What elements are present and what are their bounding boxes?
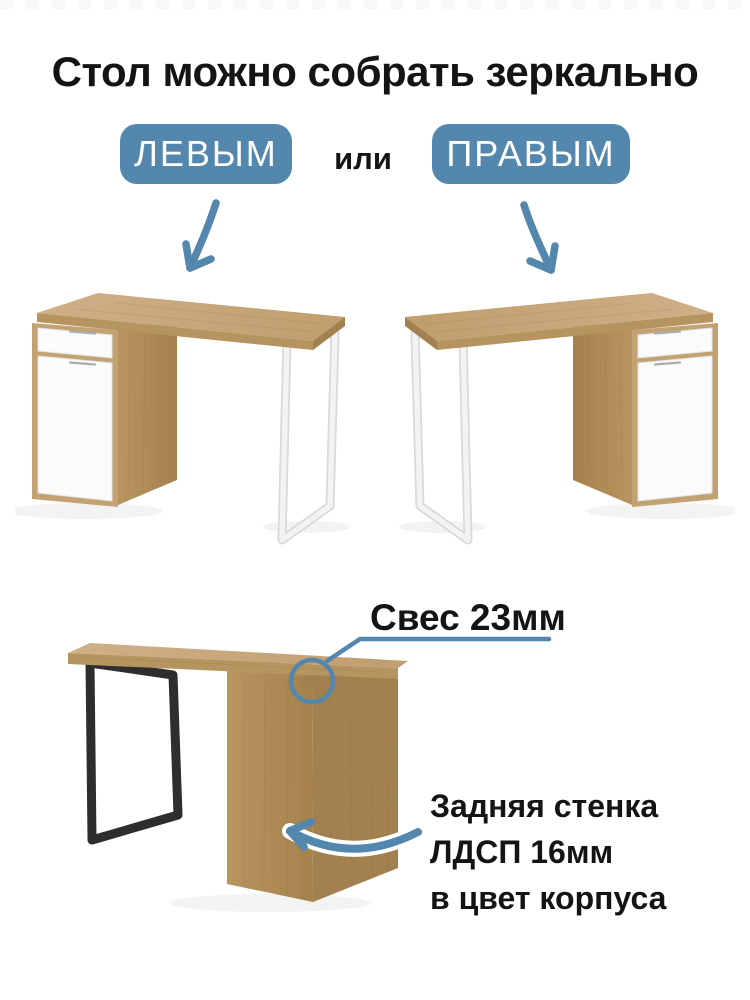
- pedestal-side-panel: [312, 668, 398, 902]
- pedestal-back-panel: [227, 671, 313, 902]
- back-panel-callout-label: Задняя стенка ЛДСП 16мм в цвет корпуса: [430, 783, 666, 921]
- badge-right-label: ПРАВЫМ: [446, 133, 615, 175]
- tabletop-overhang-step: [302, 675, 320, 688]
- desk-back-view-image: [40, 635, 430, 920]
- door-front: [38, 356, 112, 501]
- badge-left-option: ЛЕВЫМ: [120, 124, 292, 184]
- product-infographic: Стол можно собрать зеркально ЛЕВЫМ или П…: [0, 0, 750, 1000]
- overhang-callout-label: Свес 23мм: [370, 597, 566, 639]
- or-label: или: [330, 141, 396, 177]
- metal-loop-leg-black: [90, 663, 178, 840]
- desk-shadow: [15, 503, 163, 519]
- back-panel-callout-line1: Задняя стенка: [430, 783, 666, 829]
- page-title: Стол можно собрать зеркально: [0, 48, 750, 96]
- back-panel-callout-line3: в цвет корпуса: [430, 875, 666, 921]
- pedestal-side-panel: [118, 321, 177, 505]
- badge-right-option: ПРАВЫМ: [432, 124, 630, 184]
- arrow-down-right-icon: [524, 205, 555, 270]
- arrow-down-left-icon: [186, 203, 216, 268]
- badge-left-label: ЛЕВЫМ: [134, 133, 278, 175]
- desk-shadow: [170, 894, 370, 912]
- top-pattern: [0, 0, 750, 9]
- desk-left-configuration-image: [15, 283, 365, 548]
- desk-right-configuration-image: [385, 283, 735, 548]
- back-panel-callout-line2: ЛДСП 16мм: [430, 829, 666, 875]
